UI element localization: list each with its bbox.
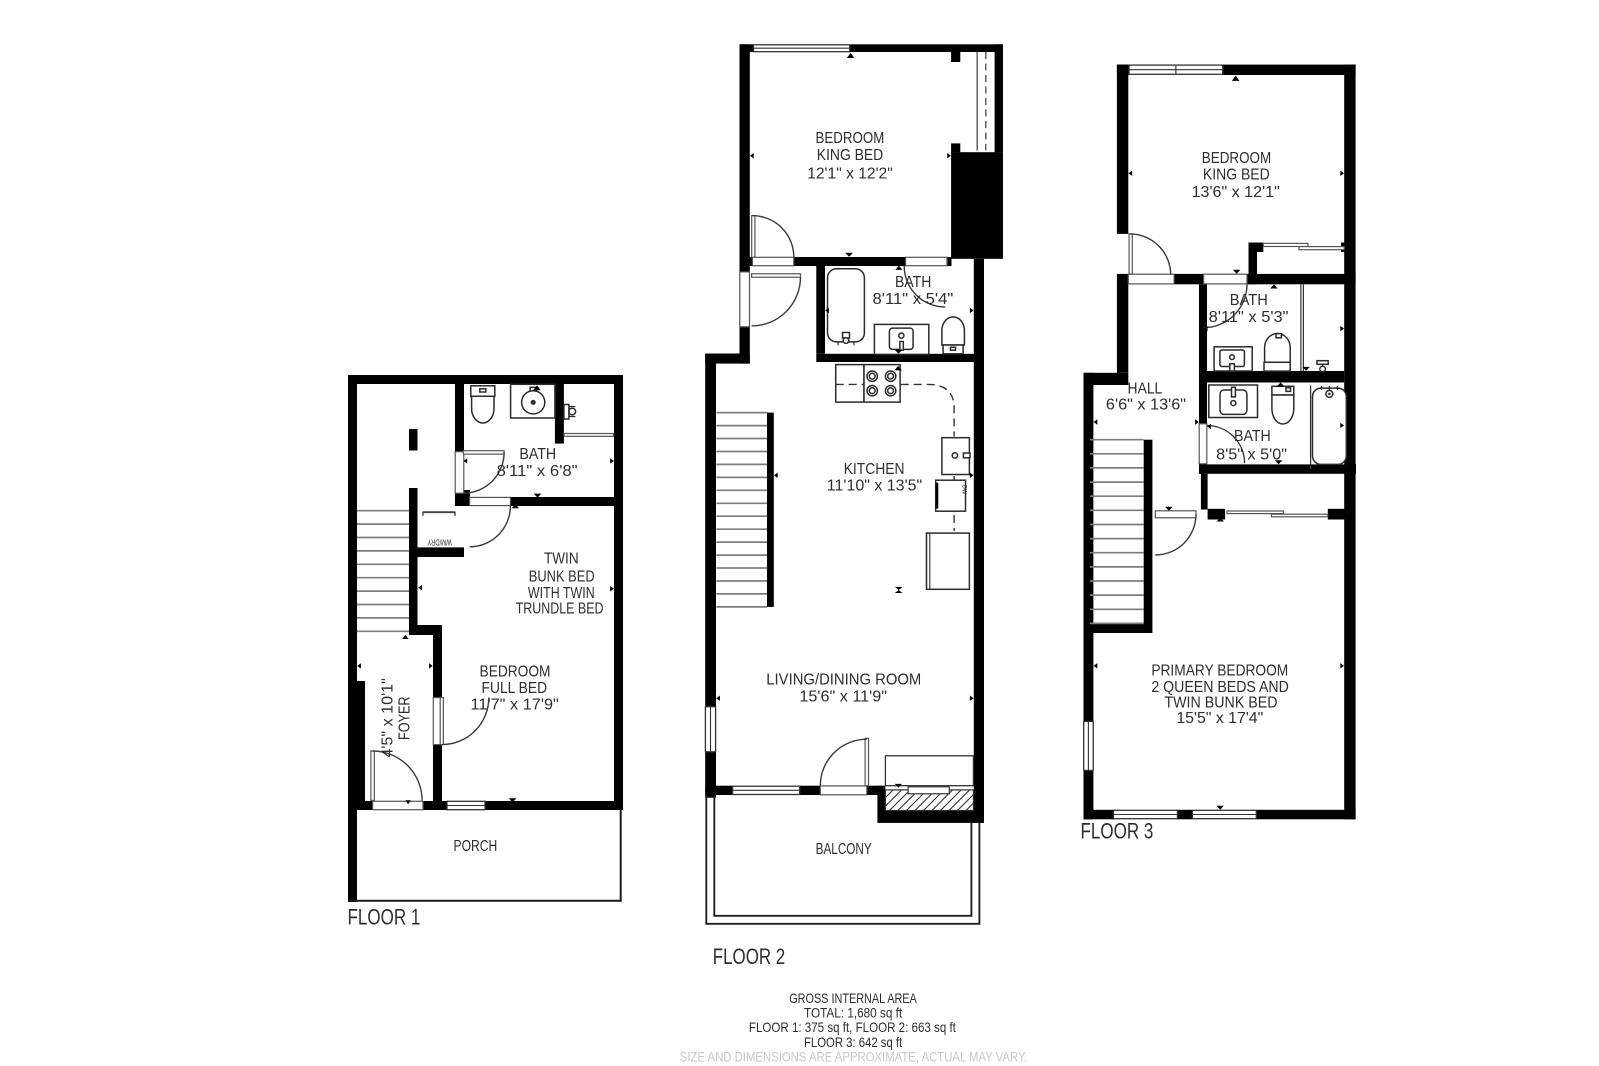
- svg-text:FLOOR 3: FLOOR 3: [1081, 818, 1154, 843]
- svg-text:11'10" x 13'5": 11'10" x 13'5": [827, 477, 922, 494]
- svg-text:TWIN BUNK BED: TWIN BUNK BED: [1164, 695, 1277, 712]
- svg-text:SIZE AND DIMENSIONS ARE APPROX: SIZE AND DIMENSIONS ARE APPROXIMATE, ACT…: [680, 1050, 1027, 1065]
- svg-text:FLOOR 1: 375 sq ft, FLOOR 2: 6: FLOOR 1: 375 sq ft, FLOOR 2: 663 sq ft: [749, 1020, 956, 1035]
- svg-text:15'6" x 11'9": 15'6" x 11'9": [799, 688, 887, 705]
- svg-text:PRIMARY BEDROOM: PRIMARY BEDROOM: [1151, 663, 1288, 680]
- svg-text:11'7" x 17'9": 11'7" x 17'9": [471, 696, 559, 713]
- svg-text:FLOOR 3: 642 sq ft: FLOOR 3: 642 sq ft: [804, 1035, 902, 1050]
- svg-text:BATH: BATH: [519, 446, 556, 463]
- svg-text:4'5" x 10'1": 4'5" x 10'1": [379, 678, 396, 758]
- svg-text:FLOOR 2: FLOOR 2: [713, 944, 785, 969]
- svg-text:KING BED: KING BED: [1203, 167, 1270, 184]
- svg-text:8'11" x 5'4": 8'11" x 5'4": [873, 291, 954, 308]
- svg-text:FLOOR 1: FLOOR 1: [348, 904, 421, 929]
- svg-text:BEDROOM: BEDROOM: [480, 664, 551, 681]
- svg-text:8'11" x 5'3": 8'11" x 5'3": [1209, 309, 1289, 326]
- svg-text:WITH TWIN: WITH TWIN: [528, 585, 595, 602]
- svg-text:8'5" x 5'0": 8'5" x 5'0": [1216, 446, 1287, 463]
- svg-text:TOTAL: 1,680 sq ft: TOTAL: 1,680 sq ft: [804, 1005, 902, 1020]
- svg-text:KING BED: KING BED: [817, 147, 883, 164]
- svg-text:BATH: BATH: [1234, 428, 1271, 445]
- svg-text:TWIN: TWIN: [544, 551, 579, 568]
- svg-text:BUNK BED: BUNK BED: [529, 568, 595, 585]
- svg-text:DW: DW: [961, 485, 968, 495]
- svg-text:WM/DRY: WM/DRY: [427, 537, 452, 546]
- svg-text:2 QUEEN BEDS AND: 2 QUEEN BEDS AND: [1151, 679, 1289, 696]
- svg-text:BATH: BATH: [895, 274, 931, 291]
- svg-text:TRUNDLE BED: TRUNDLE BED: [516, 601, 604, 618]
- svg-text:HALL: HALL: [1128, 380, 1163, 397]
- svg-text:FULL BED: FULL BED: [482, 680, 548, 697]
- svg-text:15'5" x 17'4": 15'5" x 17'4": [1176, 710, 1263, 727]
- svg-text:BEDROOM: BEDROOM: [816, 130, 885, 147]
- svg-text:8'11" x 6'8": 8'11" x 6'8": [497, 463, 578, 480]
- svg-text:6'6" x 13'6": 6'6" x 13'6": [1106, 396, 1186, 413]
- svg-text:KITCHEN: KITCHEN: [844, 461, 905, 478]
- svg-text:BEDROOM: BEDROOM: [1202, 150, 1271, 167]
- svg-text:BALCONY: BALCONY: [816, 841, 873, 858]
- svg-text:13'6" x 12'1": 13'6" x 12'1": [1192, 184, 1280, 201]
- svg-text:PORCH: PORCH: [454, 838, 498, 855]
- svg-text:FOYER: FOYER: [396, 696, 413, 740]
- svg-text:12'1" x 12'2": 12'1" x 12'2": [807, 165, 893, 182]
- svg-text:GROSS INTERNAL AREA: GROSS INTERNAL AREA: [789, 991, 917, 1006]
- svg-text:BATH: BATH: [1230, 292, 1268, 309]
- svg-text:LIVING/DINING ROOM: LIVING/DINING ROOM: [766, 671, 921, 688]
